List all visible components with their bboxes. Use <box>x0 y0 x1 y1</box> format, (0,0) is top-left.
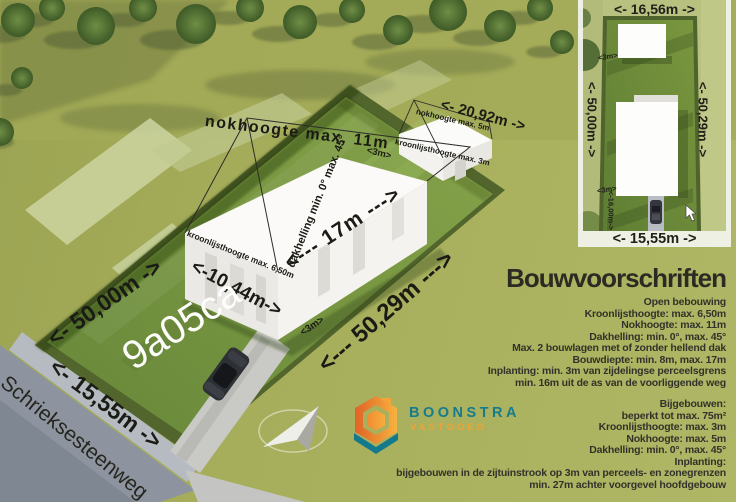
site-render: nokhoogte max. 11m <- 20,92m -> nokhoogt… <box>0 0 736 502</box>
plan-top-width-label: <- 16,56m -> <box>578 1 731 17</box>
plan-main-building <box>616 102 678 196</box>
regulations-title: Bouwvoorschriften <box>336 263 726 294</box>
plan-left-length-label: <- 50,00m -> <box>585 60 600 180</box>
rule-inplanting-1: Inplanting: min. 3m van zijdelingse perc… <box>336 366 726 378</box>
plan-view-panel: <- 16,56m -> <- 50,00m -> <- 50,29m -> <… <box>578 0 731 247</box>
plan-right-length-label: <- 50,29m -> <box>696 60 711 180</box>
plan-outbuilding <box>618 24 666 58</box>
plan-bottom-bar: <- 15,55m -> <box>578 231 731 247</box>
plan-bottom-width-label: <- 15,55m -> <box>613 231 697 247</box>
logo-house-icon <box>352 396 400 454</box>
company-logo: BOONSTRA VASTGOED <box>352 396 512 454</box>
plan-car <box>650 200 662 224</box>
logo-sub-text: VASTGOED <box>410 422 487 433</box>
logo-brand-text: BOONSTRA <box>409 405 520 421</box>
rule-open-bebouwing: Open bebouwing <box>336 297 726 309</box>
rule-bijgebouwen-zijtuinstrook: bijgebouwen in de zijtuinstrook op 3m va… <box>336 468 726 480</box>
rule-inplanting-2: min. 16m uit de as van de voorliggende w… <box>336 378 726 390</box>
rule-nokhoogte: Nokhoogte: max. 11m <box>336 320 726 332</box>
north-arrow <box>259 406 327 452</box>
rule-bouwlagen: Max. 2 bouwlagen met of zonder hellend d… <box>336 343 726 355</box>
regulations-panel: Bouwvoorschriften Open bebouwing Kroonli… <box>336 263 726 491</box>
rule-bijgebouwen-voorgevel: min. 27m achter voorgevel hoofdgebouw <box>336 480 726 492</box>
